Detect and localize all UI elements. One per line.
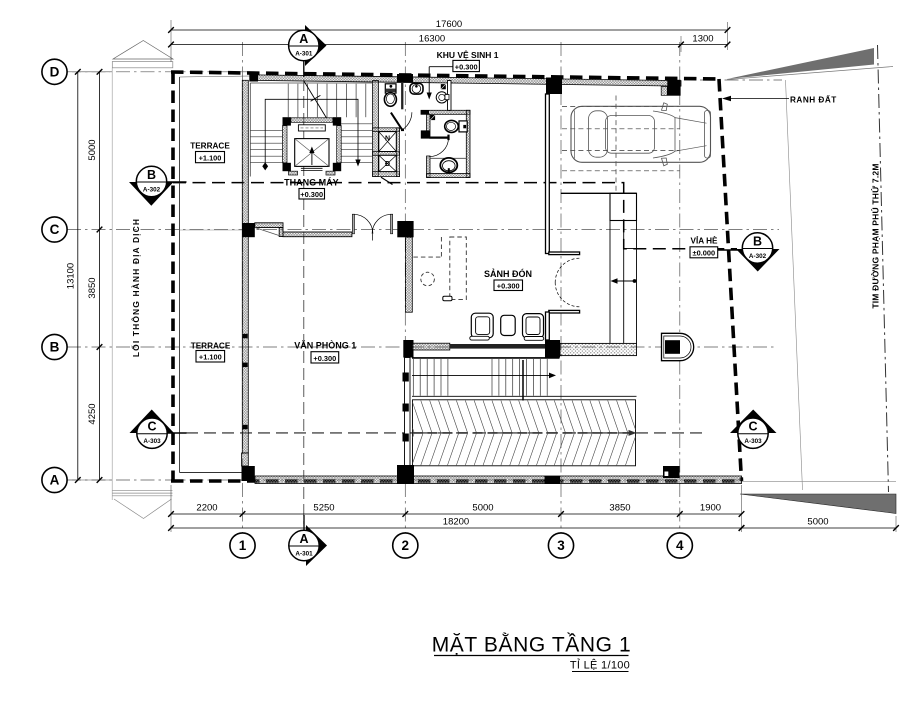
svg-text:VĂN PHÒNG 1: VĂN PHÒNG 1: [294, 340, 356, 351]
svg-text:A-302: A-302: [749, 253, 767, 260]
svg-text:+1.100: +1.100: [199, 353, 222, 362]
svg-text:KHU VỆ SINH 1: KHU VỆ SINH 1: [437, 49, 499, 60]
svg-text:±0.000: ±0.000: [693, 249, 716, 258]
svg-text:4250: 4250: [87, 403, 98, 424]
svg-text:+1.100: +1.100: [199, 153, 222, 162]
svg-text:A: A: [50, 473, 60, 488]
svg-text:+0.300: +0.300: [497, 282, 520, 291]
svg-text:B: B: [147, 168, 156, 182]
svg-text:VỈA HÈ: VỈA HÈ: [691, 234, 719, 245]
svg-text:3: 3: [557, 538, 565, 553]
svg-text:A-302: A-302: [143, 187, 161, 194]
svg-text:13100: 13100: [66, 263, 77, 289]
svg-text:LỐI THÔNG HÀNH ĐỊA DỊCH: LỐI THÔNG HÀNH ĐỊA DỊCH: [130, 218, 141, 357]
svg-text:Đ: Đ: [385, 161, 390, 168]
svg-text:2: 2: [402, 538, 410, 553]
svg-text:+0.300: +0.300: [455, 62, 478, 71]
svg-text:1: 1: [239, 538, 247, 553]
svg-text:2200: 2200: [196, 503, 217, 514]
svg-text:D: D: [50, 65, 60, 80]
svg-text:C: C: [748, 420, 757, 434]
svg-text:1300: 1300: [692, 34, 713, 45]
svg-text:3850: 3850: [87, 277, 98, 298]
svg-text:5250: 5250: [313, 503, 334, 514]
svg-text:17600: 17600: [436, 19, 462, 30]
svg-text:TIM ĐƯỜNG PHẠM PHÚ THỨ 7.2M: TIM ĐƯỜNG PHẠM PHÚ THỨ 7.2M: [870, 163, 881, 308]
svg-text:THANG MÁY: THANG MÁY: [284, 178, 339, 188]
svg-text:TỈ LỆ 1/100: TỈ LỆ 1/100: [570, 659, 630, 672]
svg-text:18200: 18200: [443, 517, 469, 528]
svg-text:TERRACE: TERRACE: [190, 142, 230, 151]
svg-text:MẶT BẰNG TẦNG 1: MẶT BẰNG TẦNG 1: [432, 633, 632, 657]
svg-text:C: C: [50, 222, 60, 237]
svg-text:A-301: A-301: [295, 51, 313, 58]
svg-text:1900: 1900: [700, 503, 721, 514]
svg-text:A-303: A-303: [744, 438, 762, 445]
svg-text:A: A: [299, 532, 308, 546]
svg-text:+0.300: +0.300: [300, 190, 323, 199]
svg-text:5000: 5000: [472, 503, 493, 514]
svg-text:A: A: [299, 32, 308, 46]
svg-text:TERRACE: TERRACE: [191, 342, 231, 351]
svg-text:3850: 3850: [609, 503, 630, 514]
svg-text:A-301: A-301: [295, 551, 313, 558]
svg-text:4: 4: [676, 538, 684, 553]
svg-text:16300: 16300: [419, 34, 445, 45]
svg-text:N: N: [385, 136, 390, 143]
svg-text:C: C: [147, 420, 156, 434]
svg-text:B: B: [50, 340, 60, 355]
svg-text:+0.300: +0.300: [313, 354, 336, 363]
svg-text:5000: 5000: [87, 139, 98, 160]
svg-text:A-303: A-303: [143, 438, 161, 445]
svg-text:5000: 5000: [807, 517, 828, 528]
svg-text:SẢNH ĐÓN: SẢNH ĐÓN: [484, 268, 532, 279]
svg-text:B: B: [753, 235, 762, 249]
svg-text:RANH ĐẤT: RANH ĐẤT: [790, 94, 837, 104]
